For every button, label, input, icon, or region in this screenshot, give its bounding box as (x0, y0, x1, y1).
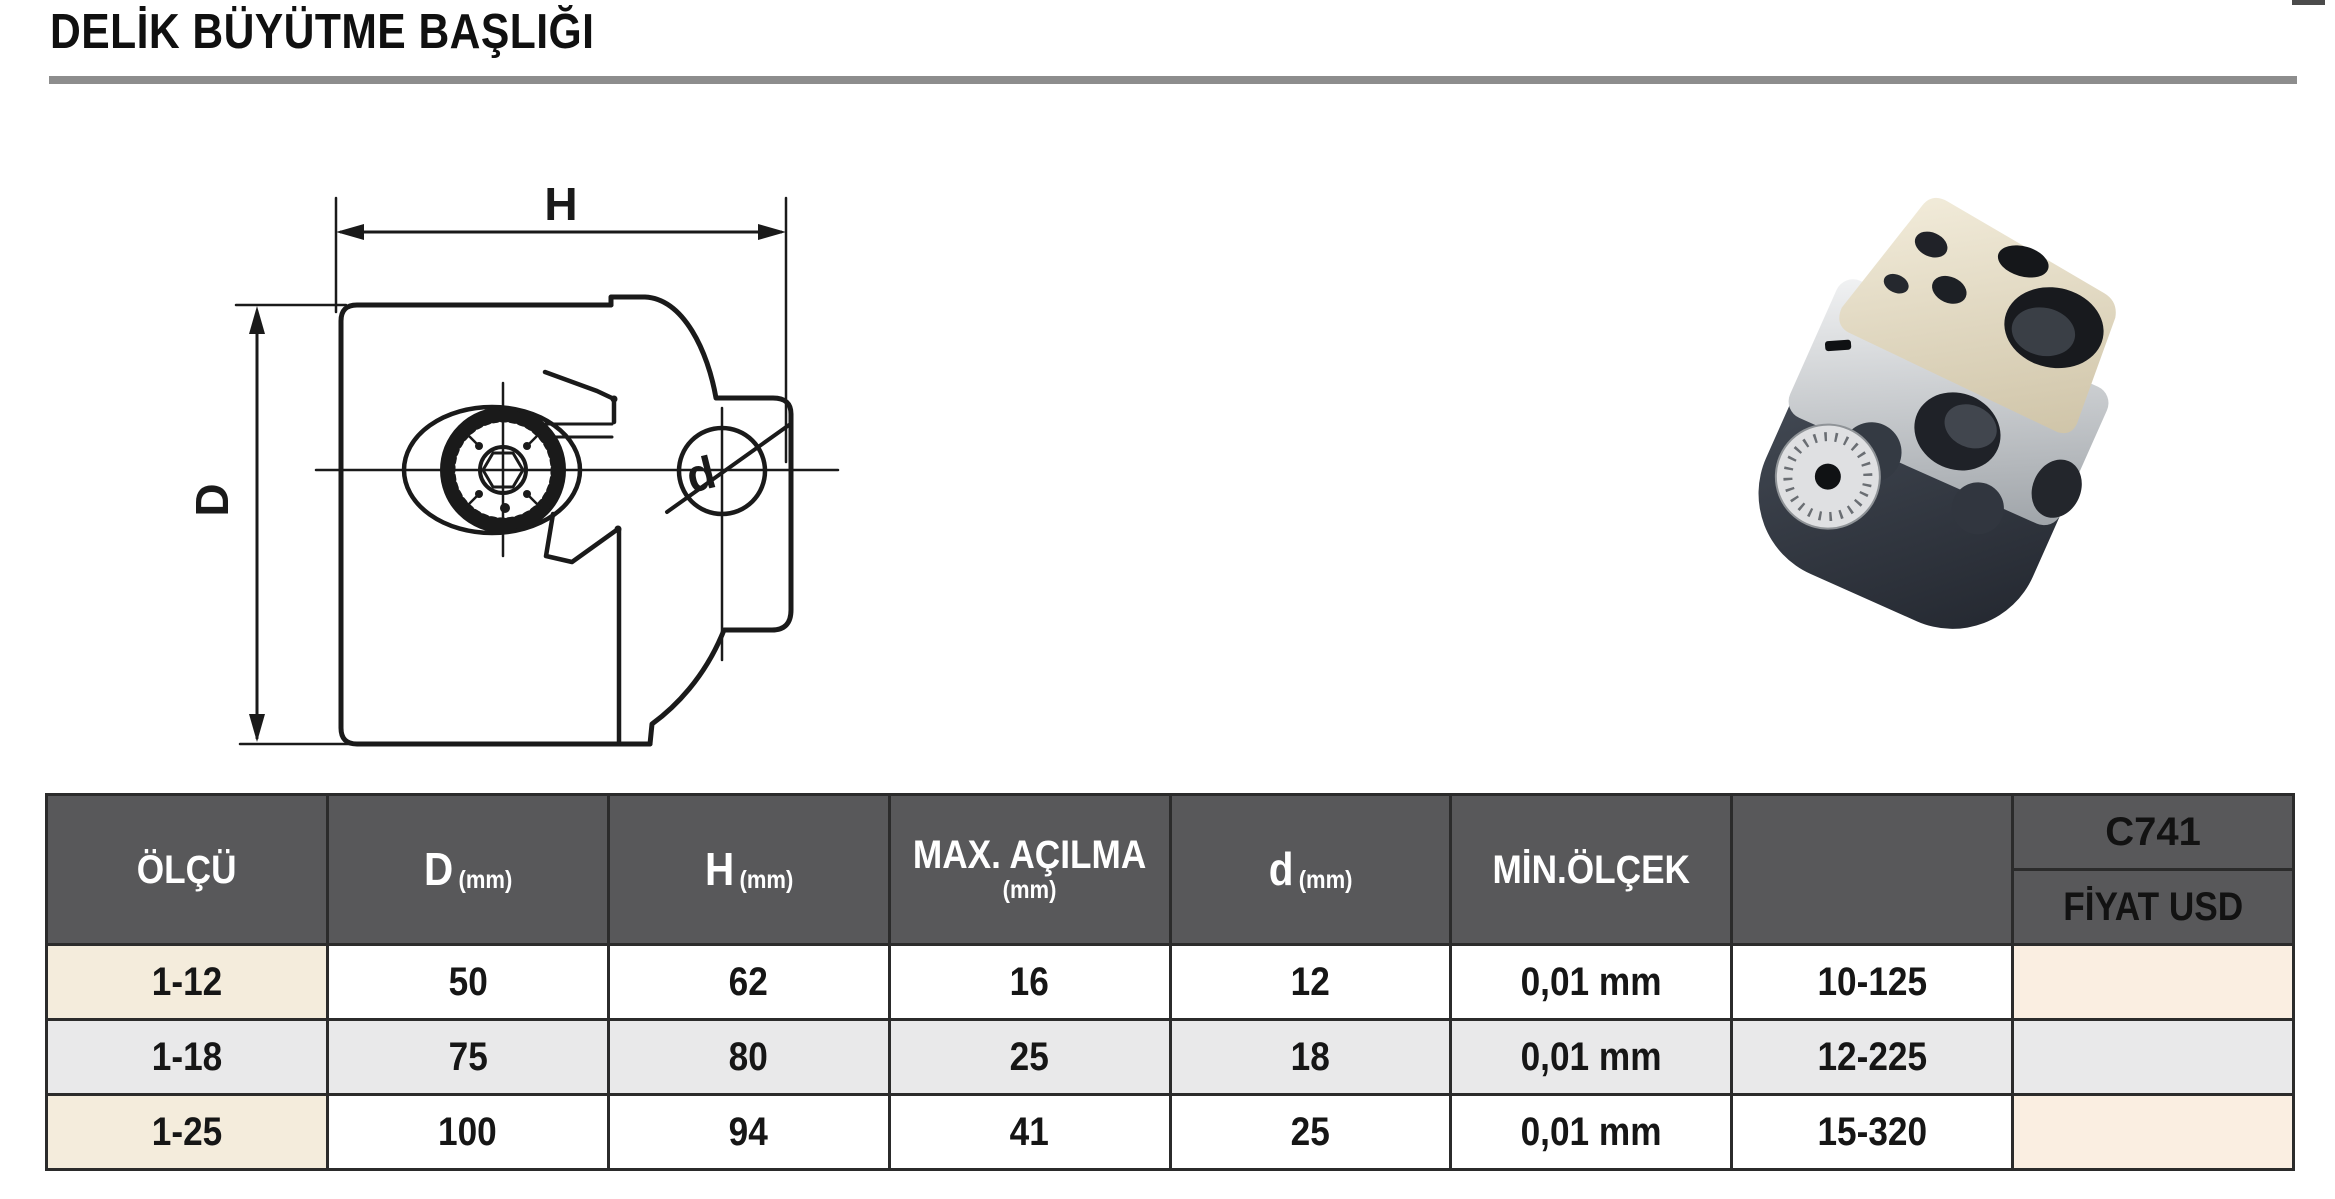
col-header-h: H(mm) (608, 795, 889, 945)
cell-size: 1-12 (47, 945, 328, 1020)
header-row: ÖLÇÜ D(mm) H(mm) MAX. AÇILMA (mm) d(mm) … (47, 795, 2294, 945)
spec-table: ÖLÇÜ D(mm) H(mm) MAX. AÇILMA (mm) d(mm) … (45, 793, 2295, 1171)
cell-range: 15-320 (1732, 1095, 2013, 1170)
cell-range: 10-125 (1732, 945, 2013, 1020)
cell-d-outer: 50 (327, 945, 608, 1020)
corner-fragment (2292, 0, 2325, 5)
cell-price (2013, 1095, 2294, 1170)
cell-min: 0,01 mm (1451, 1095, 1732, 1170)
col-header-d-outer: D(mm) (327, 795, 608, 945)
cell-d-bore: 25 (1170, 1095, 1451, 1170)
col-header-code-price: C741 FİYAT USD (2013, 795, 2294, 945)
cell-size: 1-18 (47, 1020, 328, 1095)
cell-d-bore: 18 (1170, 1020, 1451, 1095)
cell-d-bore: 12 (1170, 945, 1451, 1020)
col-header-max-acilma: MAX. AÇILMA (mm) (889, 795, 1170, 945)
cell-range: 12-225 (1732, 1020, 2013, 1095)
col-header-d-bore: d(mm) (1170, 795, 1451, 945)
center-lines (236, 198, 838, 744)
dim-d-label: D (186, 483, 238, 516)
cell-size: 1-25 (47, 1095, 328, 1170)
cell-d-outer: 100 (327, 1095, 608, 1170)
catalog-page: { "title": "DELİK BÜYÜTME BAŞLIĞI", "dra… (0, 0, 2335, 1199)
cell-max: 25 (889, 1020, 1170, 1095)
cell-min: 0,01 mm (1451, 945, 1732, 1020)
col-header-range (1732, 795, 2013, 945)
cell-max: 16 (889, 945, 1170, 1020)
table-row: 1-25 100 94 41 25 0,01 mm 15-320 (47, 1095, 2294, 1170)
cell-price (2013, 1020, 2294, 1095)
page-title: DELİK BÜYÜTME BAŞLIĞI (50, 4, 594, 60)
dimension-d (249, 306, 265, 742)
title-divider (49, 76, 2297, 84)
boring-head-body (1727, 185, 2165, 661)
dim-h-label: H (544, 178, 577, 230)
product-photo (1700, 185, 2165, 670)
cell-h: 80 (608, 1020, 889, 1095)
cell-h: 94 (608, 1095, 889, 1170)
cell-h: 62 (608, 945, 889, 1020)
cell-max: 41 (889, 1095, 1170, 1170)
price-header: FİYAT USD (2014, 868, 2292, 943)
technical-drawing: H D d (150, 120, 910, 800)
table-row: 1-12 50 62 16 12 0,01 mm 10-125 (47, 945, 2294, 1020)
product-code: C741 (2014, 796, 2292, 868)
body-outline (341, 297, 791, 744)
col-header-olcu: ÖLÇÜ (47, 795, 328, 945)
cell-price (2013, 945, 2294, 1020)
cell-d-outer: 75 (327, 1020, 608, 1095)
table-row: 1-18 75 80 25 18 0,01 mm 12-225 (47, 1020, 2294, 1095)
cell-min: 0,01 mm (1451, 1020, 1732, 1095)
col-header-min-olcek: MİN.ÖLÇEK (1451, 795, 1732, 945)
